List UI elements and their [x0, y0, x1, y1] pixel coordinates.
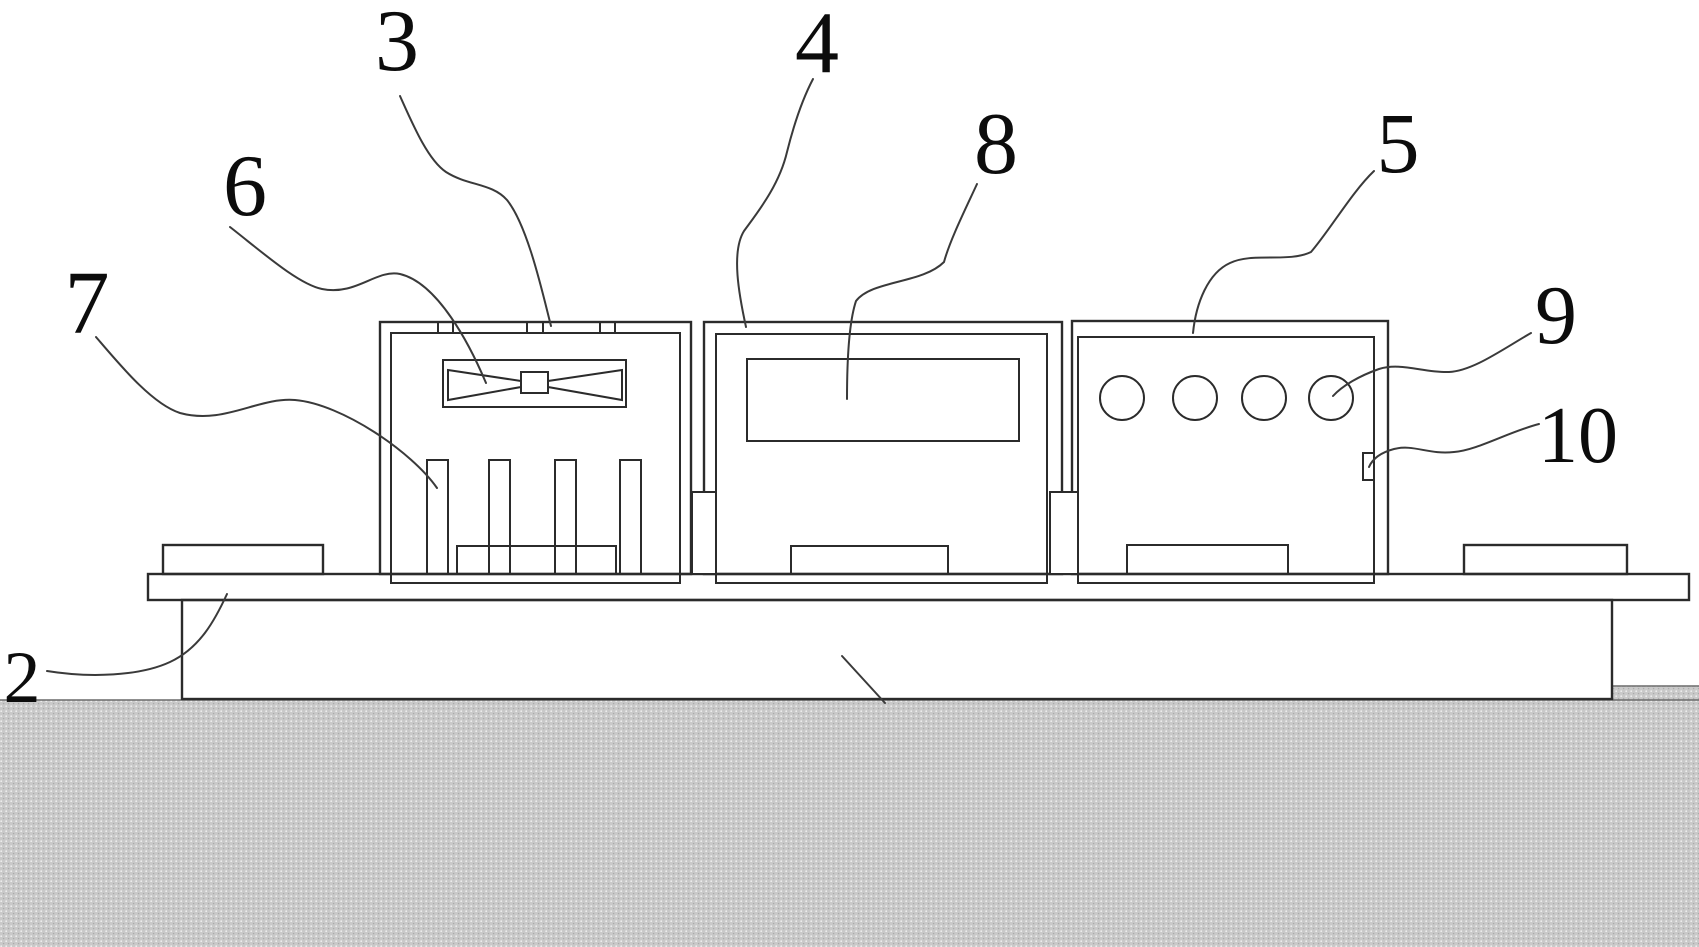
module-middle-pedestal: [791, 546, 948, 574]
button-hole-4: [1309, 376, 1353, 420]
module-left-pedestal: [457, 546, 616, 574]
vent-tab-3: [600, 322, 615, 333]
ref-label-6: 6: [223, 138, 267, 235]
leader-5: [1193, 171, 1374, 333]
leader-9: [1333, 333, 1531, 396]
pin-4: [620, 460, 641, 574]
leader-3: [400, 96, 551, 326]
figure-canvas: 2 3 4 5 6 7 8 9 10: [0, 0, 1699, 947]
display-window: [747, 359, 1019, 441]
leader-4: [737, 79, 813, 327]
fan-hub: [521, 372, 548, 393]
module-middle: [704, 322, 1062, 583]
support-plate: [148, 574, 1689, 600]
fan-blade-right: [548, 370, 622, 400]
module-right-pedestal: [1127, 545, 1288, 574]
module-right-housing: [1072, 321, 1388, 574]
ref-label-5: 5: [1377, 95, 1420, 191]
module-right: [1072, 321, 1388, 583]
ref-label-7: 7: [65, 254, 110, 353]
leader-8: [847, 184, 977, 399]
vent-tab-1: [438, 322, 453, 333]
ref-label-8: 8: [974, 96, 1018, 193]
module-connector-right: [1050, 492, 1078, 574]
button-hole-1: [1100, 376, 1144, 420]
patent-drawing: 2 3 4 5 6 7 8 9 10: [0, 0, 1699, 947]
pin-1: [427, 460, 448, 574]
module-right-inner-wall: [1078, 337, 1374, 583]
leader-7: [96, 337, 437, 488]
ref-label-2: 2: [4, 637, 41, 719]
pin-3: [555, 460, 576, 574]
ref-label-4: 4: [795, 0, 839, 92]
vent-tab-2: [527, 322, 543, 333]
platform-pad-left: [163, 545, 323, 574]
ref-label-9: 9: [1535, 269, 1577, 362]
platform-pad-right: [1464, 545, 1627, 574]
fan-blade-left: [448, 370, 521, 400]
button-hole-3: [1242, 376, 1286, 420]
module-connector-left: [692, 492, 716, 574]
machine-base-block: [182, 600, 1612, 699]
ref-label-10: 10: [1538, 392, 1618, 480]
ground-hatch: [0, 700, 1699, 947]
leader-10: [1369, 424, 1539, 467]
module-left: [380, 322, 691, 583]
ref-label-3: 3: [375, 0, 419, 90]
button-hole-2: [1173, 376, 1217, 420]
pin-2: [489, 460, 510, 574]
fan-assembly: [443, 360, 626, 407]
